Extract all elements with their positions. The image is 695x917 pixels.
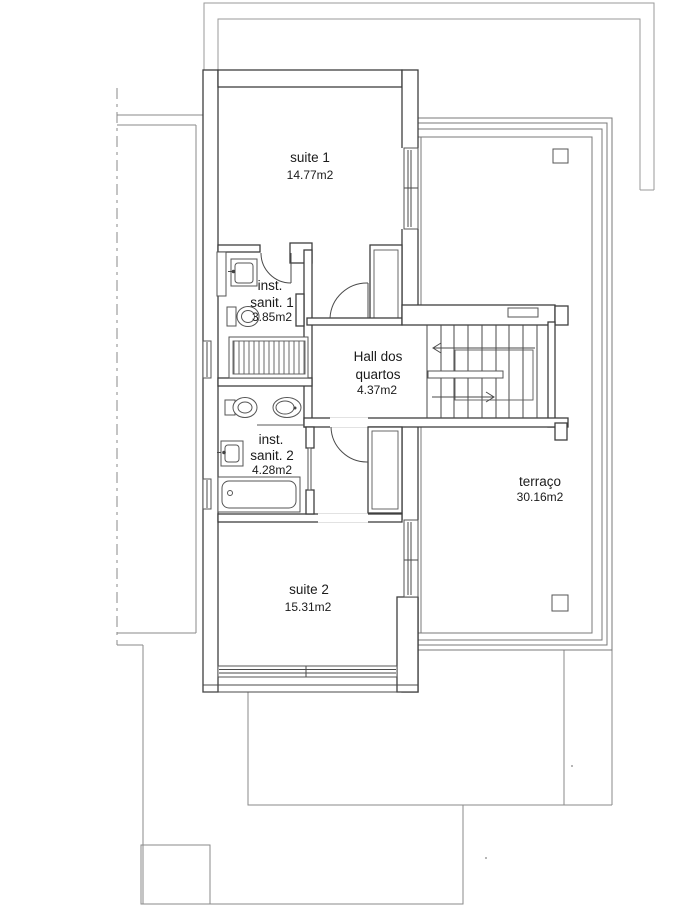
sanit1-label-line1: inst. bbox=[258, 278, 283, 293]
sanit1-label-line2: sanit. 1 bbox=[250, 295, 294, 310]
up-direction-arrow bbox=[433, 343, 535, 353]
ground-patio-step bbox=[141, 845, 210, 904]
door-hall-corridor bbox=[330, 283, 368, 318]
wall-hall-top bbox=[307, 318, 402, 325]
wall-suite1-bottom bbox=[218, 245, 260, 252]
wall-bathroom2-jamb-upper bbox=[306, 427, 314, 448]
side-terrace-outline bbox=[117, 115, 203, 633]
suite1-label: suite 1 bbox=[290, 150, 330, 165]
sanit2-label-line2: sanit. 2 bbox=[250, 448, 294, 463]
window-suite1-east bbox=[404, 148, 418, 229]
terrace-drain-top bbox=[553, 149, 568, 163]
shower-icon bbox=[229, 337, 308, 378]
terraco-label: terraço bbox=[519, 474, 561, 489]
window-bathroom2-west bbox=[203, 479, 211, 509]
wall-suite2-top bbox=[218, 514, 402, 522]
storage-cabinet-icon bbox=[217, 252, 226, 296]
suite2-label: suite 2 bbox=[289, 582, 329, 597]
sanit1-area: 3.85m2 bbox=[252, 310, 292, 324]
wall-bathroom1-jamb bbox=[296, 294, 304, 326]
floor-plan-drawing: suite 1 14.77m2 inst. sanit. 1 3.85m2 Ha… bbox=[0, 0, 695, 917]
wall-bathroom-divider bbox=[218, 378, 312, 386]
suite1-area: 14.77m2 bbox=[287, 168, 334, 182]
terrace-railing-line2 bbox=[418, 123, 607, 645]
wall-left-exterior bbox=[203, 70, 218, 692]
terrace bbox=[418, 118, 612, 650]
terrace-drain-bottom bbox=[552, 595, 568, 611]
window-suite2-south bbox=[218, 666, 397, 677]
bathtub-icon bbox=[218, 477, 300, 512]
stairs bbox=[427, 325, 537, 418]
sanit2-area: 4.28m2 bbox=[252, 463, 292, 477]
wall-vestibule-block bbox=[368, 427, 402, 513]
window-bathroom1-west bbox=[203, 341, 211, 378]
roof-eave-outline bbox=[204, 3, 654, 190]
wall-corner-post-se bbox=[397, 597, 418, 692]
wall-stairwell-right bbox=[548, 322, 555, 427]
scanned-floor-plan-page: suite 1 14.77m2 inst. sanit. 1 3.85m2 Ha… bbox=[0, 0, 695, 917]
door-hall-suite2 bbox=[331, 427, 368, 462]
hall-area: 4.37m2 bbox=[357, 383, 397, 397]
wall-top-exterior bbox=[218, 70, 402, 87]
ground-level-outline bbox=[117, 645, 612, 904]
terrace-railing-outer bbox=[418, 118, 612, 650]
bidet-icon bbox=[225, 398, 257, 418]
sanit2-label-line1: inst. bbox=[259, 432, 284, 447]
duct-shaft bbox=[370, 245, 402, 322]
hall-label-line2: quartos bbox=[355, 367, 400, 382]
wall-niche bbox=[508, 308, 538, 317]
hall-label-line1: Hall dos bbox=[354, 349, 403, 364]
terrace-floor-edge bbox=[418, 137, 592, 633]
scan-speck bbox=[485, 857, 487, 859]
washbasin-icon bbox=[217, 441, 243, 466]
washbasin-icon bbox=[228, 259, 257, 286]
opening-stairwell bbox=[401, 322, 419, 418]
wall-bottom-sill-lines bbox=[203, 685, 418, 692]
terrace-railing-line3 bbox=[418, 129, 602, 640]
window-suite2-east bbox=[404, 520, 418, 597]
opening-hall-vestibule bbox=[330, 418, 368, 428]
wall-stairwell-end-top bbox=[555, 306, 568, 325]
wall-bathroom2-jamb-lower bbox=[306, 490, 314, 514]
toilet-icon bbox=[273, 398, 301, 418]
suite2-area: 15.31m2 bbox=[285, 600, 332, 614]
bathroom2-open-door-leaf bbox=[308, 448, 311, 490]
opening-suite2-entry bbox=[318, 514, 368, 523]
stair-handrail bbox=[428, 371, 503, 378]
wall-stairwell-end-bottom bbox=[555, 423, 567, 440]
terraco-area: 30.16m2 bbox=[517, 490, 564, 504]
scan-speck bbox=[571, 765, 573, 767]
